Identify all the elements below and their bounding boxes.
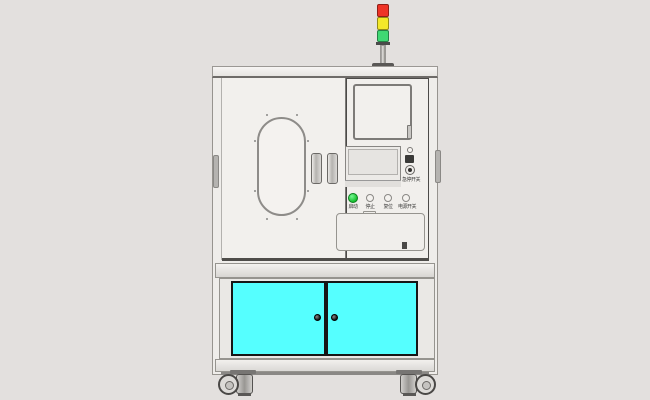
inspection-window-handle (407, 125, 412, 139)
power-port-icon (405, 155, 414, 163)
center-door-handle-left (311, 153, 322, 184)
tower-light-green (377, 30, 389, 42)
window-screw (307, 140, 309, 142)
lower-cabinet-door-left (231, 281, 326, 356)
tower-light-pole (380, 45, 386, 64)
power-button-label: 电源开关 (392, 204, 422, 210)
hmi-screen-bottom-band (345, 180, 401, 187)
start-button-icon (348, 193, 358, 203)
estop-label: 急停开关 (396, 177, 426, 183)
left-door-oval-window (257, 117, 306, 216)
window-screw (296, 218, 298, 220)
door-knob-right (331, 314, 338, 321)
stop-button-label: 停止 (360, 204, 380, 210)
power-button-icon (402, 194, 410, 202)
window-screw (254, 190, 256, 192)
caster-foot-left (238, 393, 251, 396)
caster-foot-right (403, 393, 416, 396)
tower-light-yellow (377, 17, 389, 30)
machine-illustration: 急停开关 启动 停止 复位 电源开关 (0, 0, 650, 400)
drawer-latch (402, 242, 407, 249)
window-screw (266, 114, 268, 116)
inspection-window (353, 84, 412, 140)
window-screw (307, 190, 309, 192)
window-screw (266, 218, 268, 220)
side-handle-right (435, 150, 441, 183)
upper-cabinet-bottom-strip (222, 258, 429, 261)
hmi-screen-display (348, 149, 398, 175)
reset-button-icon (384, 194, 392, 202)
emergency-stop-button-icon (405, 165, 415, 175)
stop-button-icon (366, 194, 374, 202)
door-knob-left (314, 314, 321, 321)
access-drawer-panel (336, 213, 425, 251)
caster-wheel-right (415, 374, 436, 395)
side-handle-left (213, 155, 219, 188)
window-screw (254, 140, 256, 142)
caster-wheel-left (218, 374, 239, 395)
mid-shelf (215, 263, 435, 278)
window-screw (296, 114, 298, 116)
indicator-lamp-icon (407, 147, 413, 153)
tower-light-red (377, 4, 389, 17)
center-door-handle-right (327, 153, 338, 184)
lower-cabinet-door-right (326, 281, 418, 356)
machine-top-rail (212, 66, 438, 78)
